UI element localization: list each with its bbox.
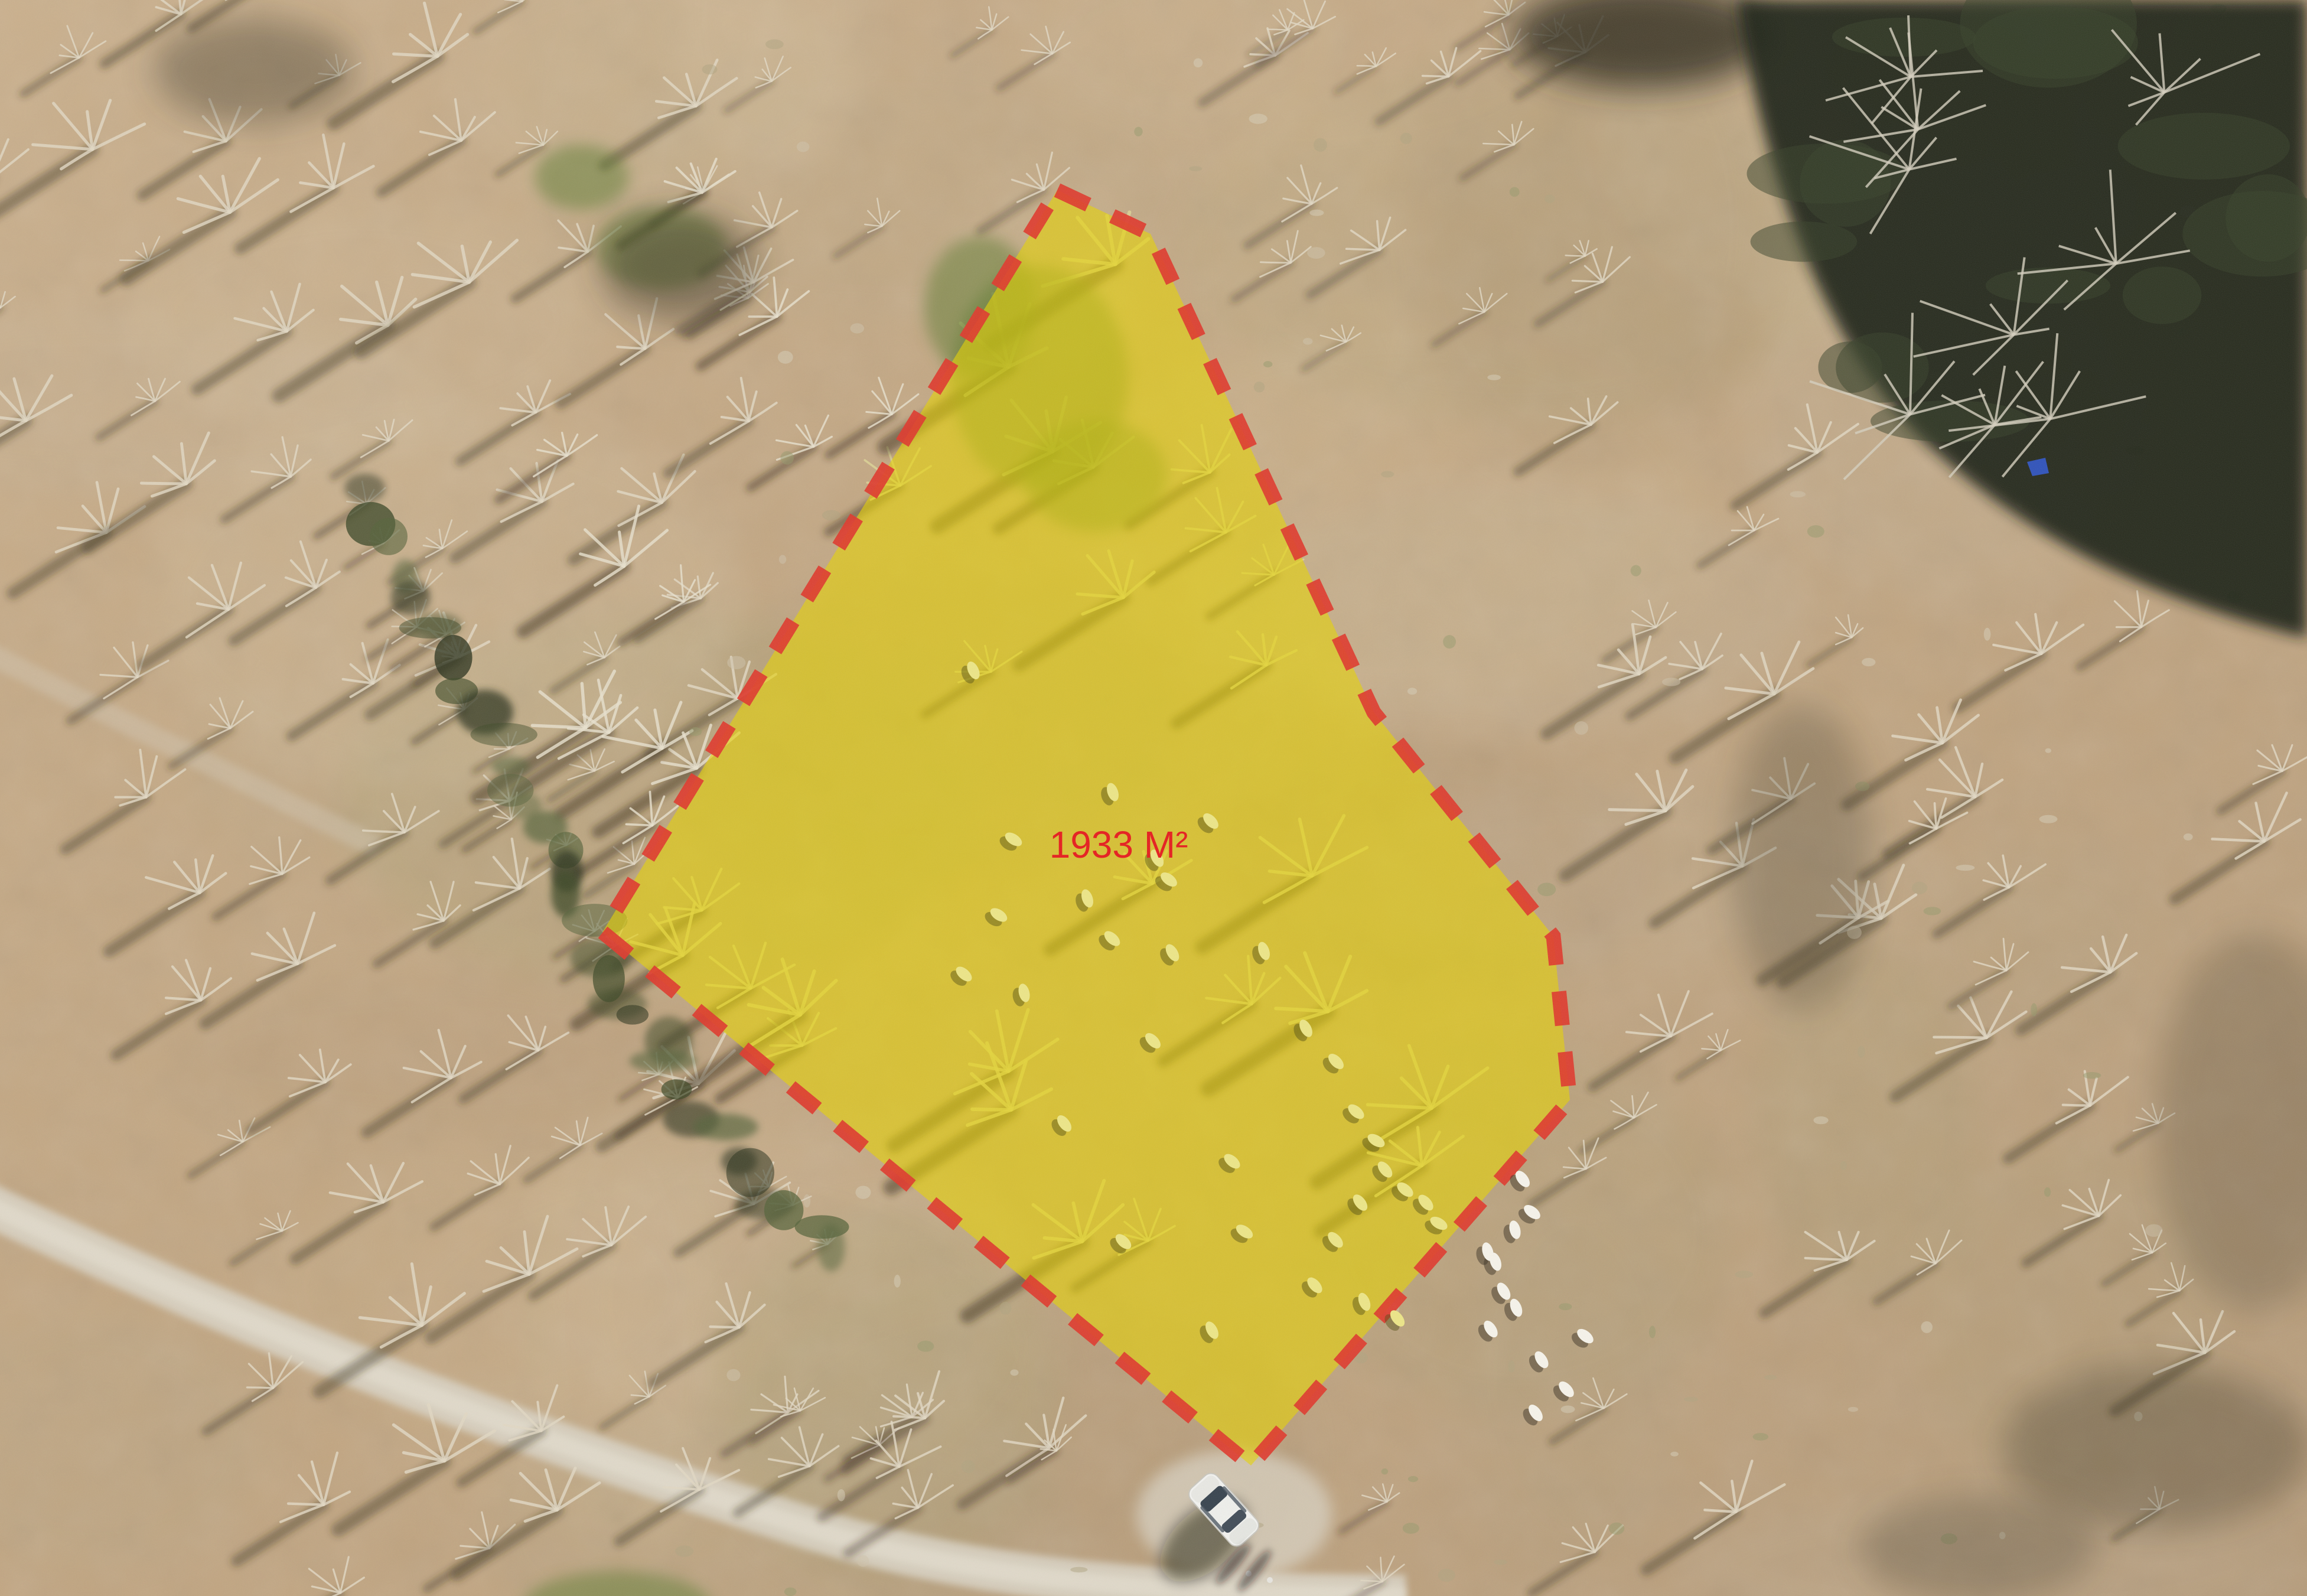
aerial-photo: 1933 M²: [0, 0, 2307, 1596]
grain-overlay: [0, 0, 2307, 1596]
aerial-photo-stage: 1933 M²: [0, 0, 2307, 1596]
